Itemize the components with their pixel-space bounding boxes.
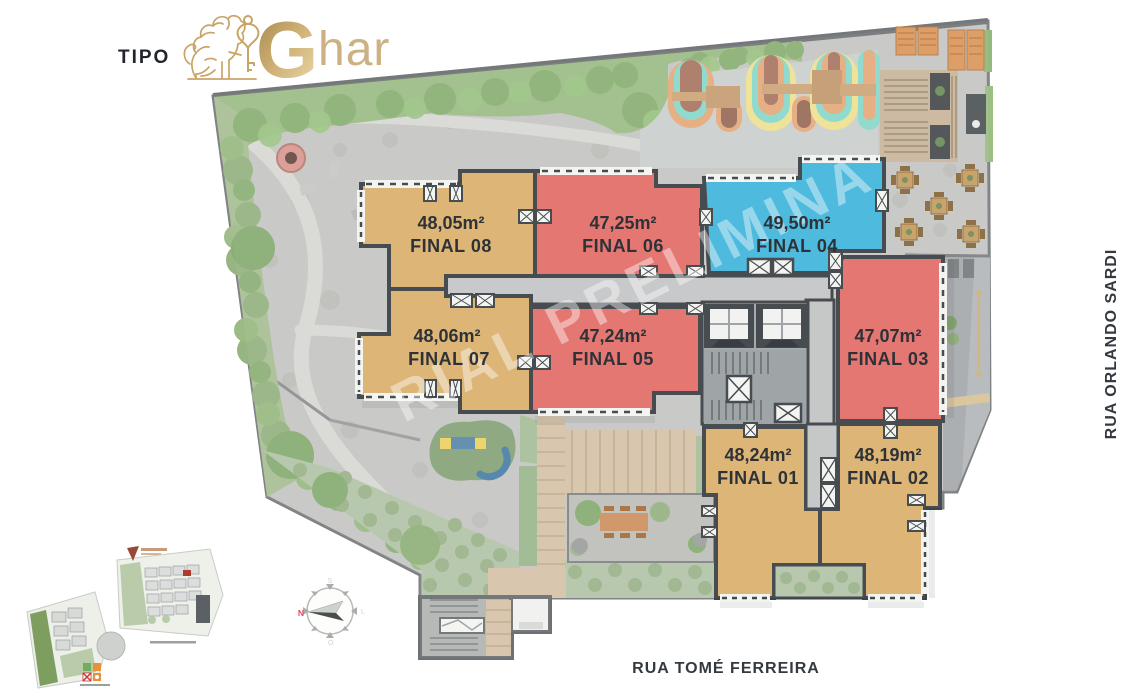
svg-text:47,25m²: 47,25m² bbox=[589, 213, 656, 233]
svg-text:FINAL 01: FINAL 01 bbox=[717, 468, 799, 488]
svg-text:FINAL 08: FINAL 08 bbox=[410, 236, 492, 256]
svg-text:48,24m²: 48,24m² bbox=[724, 445, 791, 465]
svg-text:FINAL 04: FINAL 04 bbox=[756, 236, 838, 256]
svg-text:N: N bbox=[298, 608, 304, 618]
svg-text:49,50m²: 49,50m² bbox=[763, 213, 830, 233]
svg-text:S: S bbox=[328, 578, 333, 585]
svg-text:48,05m²: 48,05m² bbox=[417, 213, 484, 233]
svg-text:har: har bbox=[318, 23, 390, 76]
svg-text:RUA ORLANDO SARDI: RUA ORLANDO SARDI bbox=[1103, 249, 1120, 440]
svg-text:FINAL 06: FINAL 06 bbox=[582, 236, 664, 256]
svg-text:47,07m²: 47,07m² bbox=[854, 326, 921, 346]
svg-text:L: L bbox=[361, 609, 365, 616]
svg-text:RUA TOMÉ FERREIRA: RUA TOMÉ FERREIRA bbox=[632, 658, 820, 677]
svg-text:FINAL 07: FINAL 07 bbox=[408, 349, 490, 369]
svg-text:FINAL 05: FINAL 05 bbox=[572, 349, 654, 369]
svg-text:FINAL 02: FINAL 02 bbox=[847, 468, 929, 488]
svg-text:O: O bbox=[328, 640, 334, 647]
svg-text:TIPO: TIPO bbox=[118, 47, 170, 68]
svg-text:48,19m²: 48,19m² bbox=[854, 445, 921, 465]
svg-text:G: G bbox=[256, 5, 318, 94]
svg-text:48,06m²: 48,06m² bbox=[413, 326, 480, 346]
svg-text:FINAL 03: FINAL 03 bbox=[847, 349, 929, 369]
svg-text:47,24m²: 47,24m² bbox=[579, 326, 646, 346]
